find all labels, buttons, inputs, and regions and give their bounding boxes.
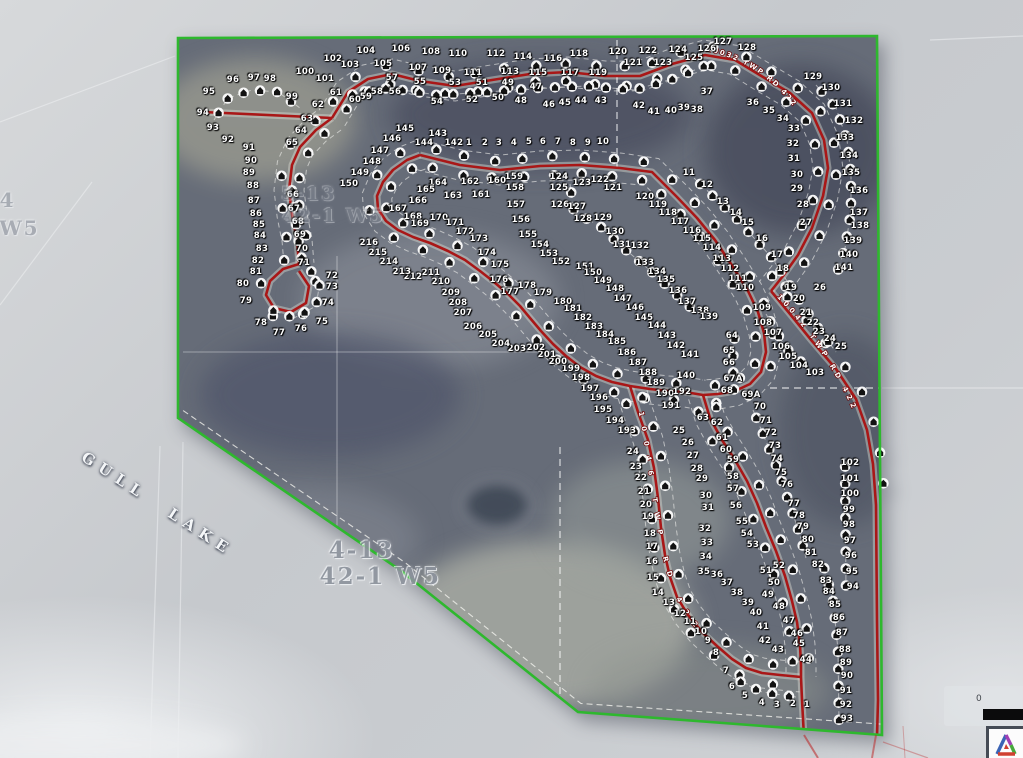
house-icon [256,278,267,289]
house-icon [255,85,266,96]
house-icon [823,336,834,347]
house-icon [634,83,645,94]
house-icon [846,181,857,192]
house-icon [857,387,868,398]
house-icon [787,656,798,667]
house-icon [813,166,824,177]
house-icon [695,179,706,190]
house-icon [742,305,753,316]
house-icon [698,61,709,72]
house-icon [722,427,733,438]
house-icon [760,542,771,553]
house-icon [750,358,761,369]
house-icon [364,86,375,97]
house-icon [783,345,794,356]
house-icon [643,483,654,494]
house-icon [771,460,782,471]
house-icon [776,476,787,487]
house-icon [728,367,739,378]
house-icon [801,623,812,634]
house-icon [588,359,599,370]
house-icon [840,362,851,373]
house-icon [788,564,799,575]
house-icon [840,130,851,141]
house-icon [668,541,679,552]
house-icon [766,66,777,77]
house-icon [490,156,501,167]
house-icon [609,387,620,398]
house-icon [729,333,740,344]
map: 10032 TWP RD 42210042 TWP RD 42210046 TW… [0,0,1023,758]
house-icon [724,462,735,473]
house-icon [341,104,352,115]
township-label: 5-13 [281,183,337,205]
house-icon [581,213,592,224]
house-icon [834,715,845,726]
township-label: 4-13 [329,537,395,564]
house-icon [531,334,542,345]
house-icon [609,154,620,165]
house-icon [710,380,721,391]
house-icon [511,311,522,322]
house-icon [637,454,648,465]
house-icon [868,417,879,428]
house-icon [639,156,650,167]
house-icon [672,290,683,301]
house-icon [729,384,740,395]
house-icon [781,97,792,108]
house-icon [675,209,686,220]
house-icon [775,266,786,277]
house-icon [751,684,762,695]
house-icon [709,650,720,661]
house-icon [596,222,607,233]
house-icon [407,163,418,174]
house-icon [695,231,706,242]
house-icon [709,220,720,231]
house-icon [222,93,233,104]
house-icon [845,164,856,175]
house-icon [750,331,761,342]
house-icon [768,659,779,670]
house-icon [690,197,701,208]
house-icon [833,647,844,658]
house-icon [831,169,842,180]
house-icon [238,88,249,99]
house-icon [549,170,560,181]
house-icon [314,280,325,291]
township-label: W5 [0,216,40,240]
house-icon [720,202,731,213]
house-icon [683,68,694,79]
house-icon [533,83,544,94]
house-icon [829,137,840,148]
house-icon [823,199,834,210]
house-icon [736,486,747,497]
house-icon [833,664,844,675]
house-icon [659,278,670,289]
house-icon [669,395,680,406]
house-icon [775,534,786,545]
house-icon [843,147,854,158]
house-icon [840,461,851,472]
house-icon [768,679,779,690]
scale-zero-label: 0 [976,694,982,704]
house-icon [841,580,852,591]
house-icon [673,569,684,580]
house-icon [660,481,671,492]
house-icon [395,147,406,158]
house-icon [713,255,724,266]
house-icon [478,257,489,268]
house-icon [748,514,759,525]
house-icon [804,653,815,664]
house-icon [634,256,645,267]
house-icon [840,529,851,540]
house-icon [547,151,558,162]
house-icon [647,267,658,278]
house-icon [413,65,424,76]
house-icon [499,63,510,74]
house-icon [452,240,463,251]
house-icon [629,426,640,437]
house-icon [517,153,528,164]
house-icon [735,676,746,687]
house-icon [784,246,795,257]
house-icon [656,189,667,200]
house-icon [552,355,563,366]
house-icon [431,144,442,155]
house-icon [667,74,678,85]
house-icon [637,175,648,186]
house-icon [328,96,339,107]
house-icon [279,255,290,266]
house-icon [782,492,793,503]
house-icon [567,81,578,92]
house-icon [728,350,739,361]
house-icon [815,106,826,117]
house-icon [386,181,397,192]
house-icon [516,84,527,95]
house-icon [846,198,857,209]
house-icon [319,128,330,139]
house-icon [833,264,844,275]
house-icon [560,58,571,69]
house-icon [758,428,769,439]
house-icon [397,85,408,96]
house-icon [448,89,459,100]
house-icon [816,86,827,97]
house-icon [381,60,392,71]
house-icon [427,162,438,173]
house-icon [350,72,361,83]
lake-shore-highlight [0,717,245,758]
house-icon [766,252,777,263]
house-icon [424,228,435,239]
house-icon [730,65,741,76]
house-icon [764,444,775,455]
house-icon [566,187,577,198]
house-icon [618,84,629,95]
house-icon [759,298,770,309]
house-icon [310,115,321,126]
aerial-map-canvas: 10032 TWP RD 42210042 TWP RD 42210046 TW… [0,0,1023,758]
house-icon [286,96,297,107]
house-icon [844,215,855,226]
house-icon [311,297,322,308]
house-icon [751,413,762,424]
scale-bar: 0 [944,686,1023,726]
house-icon [294,173,305,184]
house-icon [784,626,795,637]
house-icon [306,266,317,277]
house-icon [651,78,662,89]
house-icon [213,108,224,119]
house-icon [810,139,821,150]
township-label: 42-1 W5 [282,205,385,227]
pond [467,485,527,525]
house-icon [756,81,767,92]
house-icon [671,378,682,389]
house-icon [647,514,658,525]
house-icon [525,299,536,310]
house-icon [803,309,814,320]
house-icon [743,390,754,401]
house-icon [793,524,804,535]
house-icon [418,245,429,256]
house-icon [778,597,789,608]
house-icon [819,563,830,574]
house-icon [641,373,652,384]
house-icon [299,307,310,318]
house-icon [801,115,812,126]
house-icon [276,171,287,182]
house-icon [765,507,776,518]
house-icon [621,245,632,256]
house-icon [637,392,648,403]
house-icon [347,89,358,100]
house-icon [576,168,587,179]
house-icon [808,195,819,206]
house-icon [785,280,796,291]
house-icon [284,311,295,322]
house-icon [741,52,752,63]
house-icon [796,593,807,604]
house-icon [531,60,542,71]
house-icon [389,232,400,243]
surveyor-triangle-icon [989,729,1023,758]
house-icon [814,230,825,241]
house-icon [765,361,776,372]
house-icon [784,691,795,702]
house-icon [431,90,442,101]
house-icon [621,398,632,409]
house-icon [490,290,501,301]
house-icon [649,542,660,553]
house-icon [268,305,279,316]
house-icon [830,613,841,624]
house-icon [765,316,776,327]
logo-panel [986,726,1023,758]
house-icon [701,618,712,629]
house-icon [647,57,658,68]
house-icon [835,114,846,125]
house-icon [566,343,577,354]
house-icon [568,204,579,215]
house-icon [469,273,480,284]
house-icon [838,248,849,259]
house-icon [840,546,851,557]
house-icon [796,356,807,367]
house-icon [663,510,674,521]
house-icon [648,421,659,432]
house-icon [840,512,851,523]
house-icon [732,214,743,225]
house-icon [487,172,498,183]
township-label: 4 [0,188,16,212]
house-icon [683,593,694,604]
house-icon [381,83,392,94]
house-icon [828,596,839,607]
house-icon [842,231,853,242]
house-icon [721,637,732,648]
house-icon [708,41,719,52]
house-icon [727,244,738,255]
house-icon [580,152,591,163]
house-icon [459,150,470,161]
subdivision-parcel: 10032 TWP RD 42210042 TWP RD 42210046 TW… [155,36,910,758]
house-icon [799,257,810,268]
house-icon [544,321,555,332]
house-icon [465,88,476,99]
house-icon [285,139,296,150]
house-icon [686,628,697,639]
house-icon [444,257,455,268]
house-icon [503,277,514,288]
house-icon [612,369,623,380]
house-icon [578,374,589,385]
house-icon [620,61,631,72]
house-icon [669,604,680,615]
house-icon [444,71,455,82]
house-icon [738,451,749,462]
house-icon [458,170,469,181]
house-icon [608,233,619,244]
house-icon [728,279,739,290]
house-icon [685,301,696,312]
house-icon [743,227,754,238]
house-icon [667,174,678,185]
house-icon [754,239,765,250]
house-icon [296,252,307,263]
house-icon [831,630,842,641]
township-label: 42-1 W5 [320,563,441,590]
house-icon [482,87,493,98]
house-icon [833,681,844,692]
house-icon [693,406,704,417]
house-icon [787,508,798,519]
house-icon [797,220,808,231]
house-icon [827,99,838,110]
house-icon [824,579,835,590]
house-icon [707,436,718,447]
scale-bar-segment [983,709,1023,720]
house-icon [769,569,780,580]
house-icon [398,218,409,229]
house-icon [745,271,756,282]
house-icon [797,540,808,551]
house-icon [840,495,851,506]
house-icon [833,698,844,709]
house-icon [711,402,722,413]
house-icon [591,60,602,71]
house-icon [841,563,852,574]
house-icon [372,170,383,181]
house-icon [607,171,618,182]
house-icon [303,148,314,159]
house-icon [782,292,793,303]
house-icon [414,87,425,98]
house-icon [813,323,824,334]
house-icon [675,47,686,58]
house-icon [601,82,612,93]
house-icon [754,480,765,491]
house-icon [293,236,304,247]
house-icon [499,85,510,96]
house-icon [272,87,283,98]
house-icon [470,68,481,79]
house-icon [840,478,851,489]
house-icon [793,83,804,94]
house-icon [584,81,595,92]
house-icon [794,294,805,305]
house-icon [656,573,667,584]
house-icon [519,171,530,182]
house-icon [767,688,778,699]
house-icon [743,654,754,665]
house-icon [281,232,292,243]
house-icon [656,451,667,462]
house-icon [774,331,785,342]
house-icon [707,190,718,201]
house-icon [550,82,561,93]
